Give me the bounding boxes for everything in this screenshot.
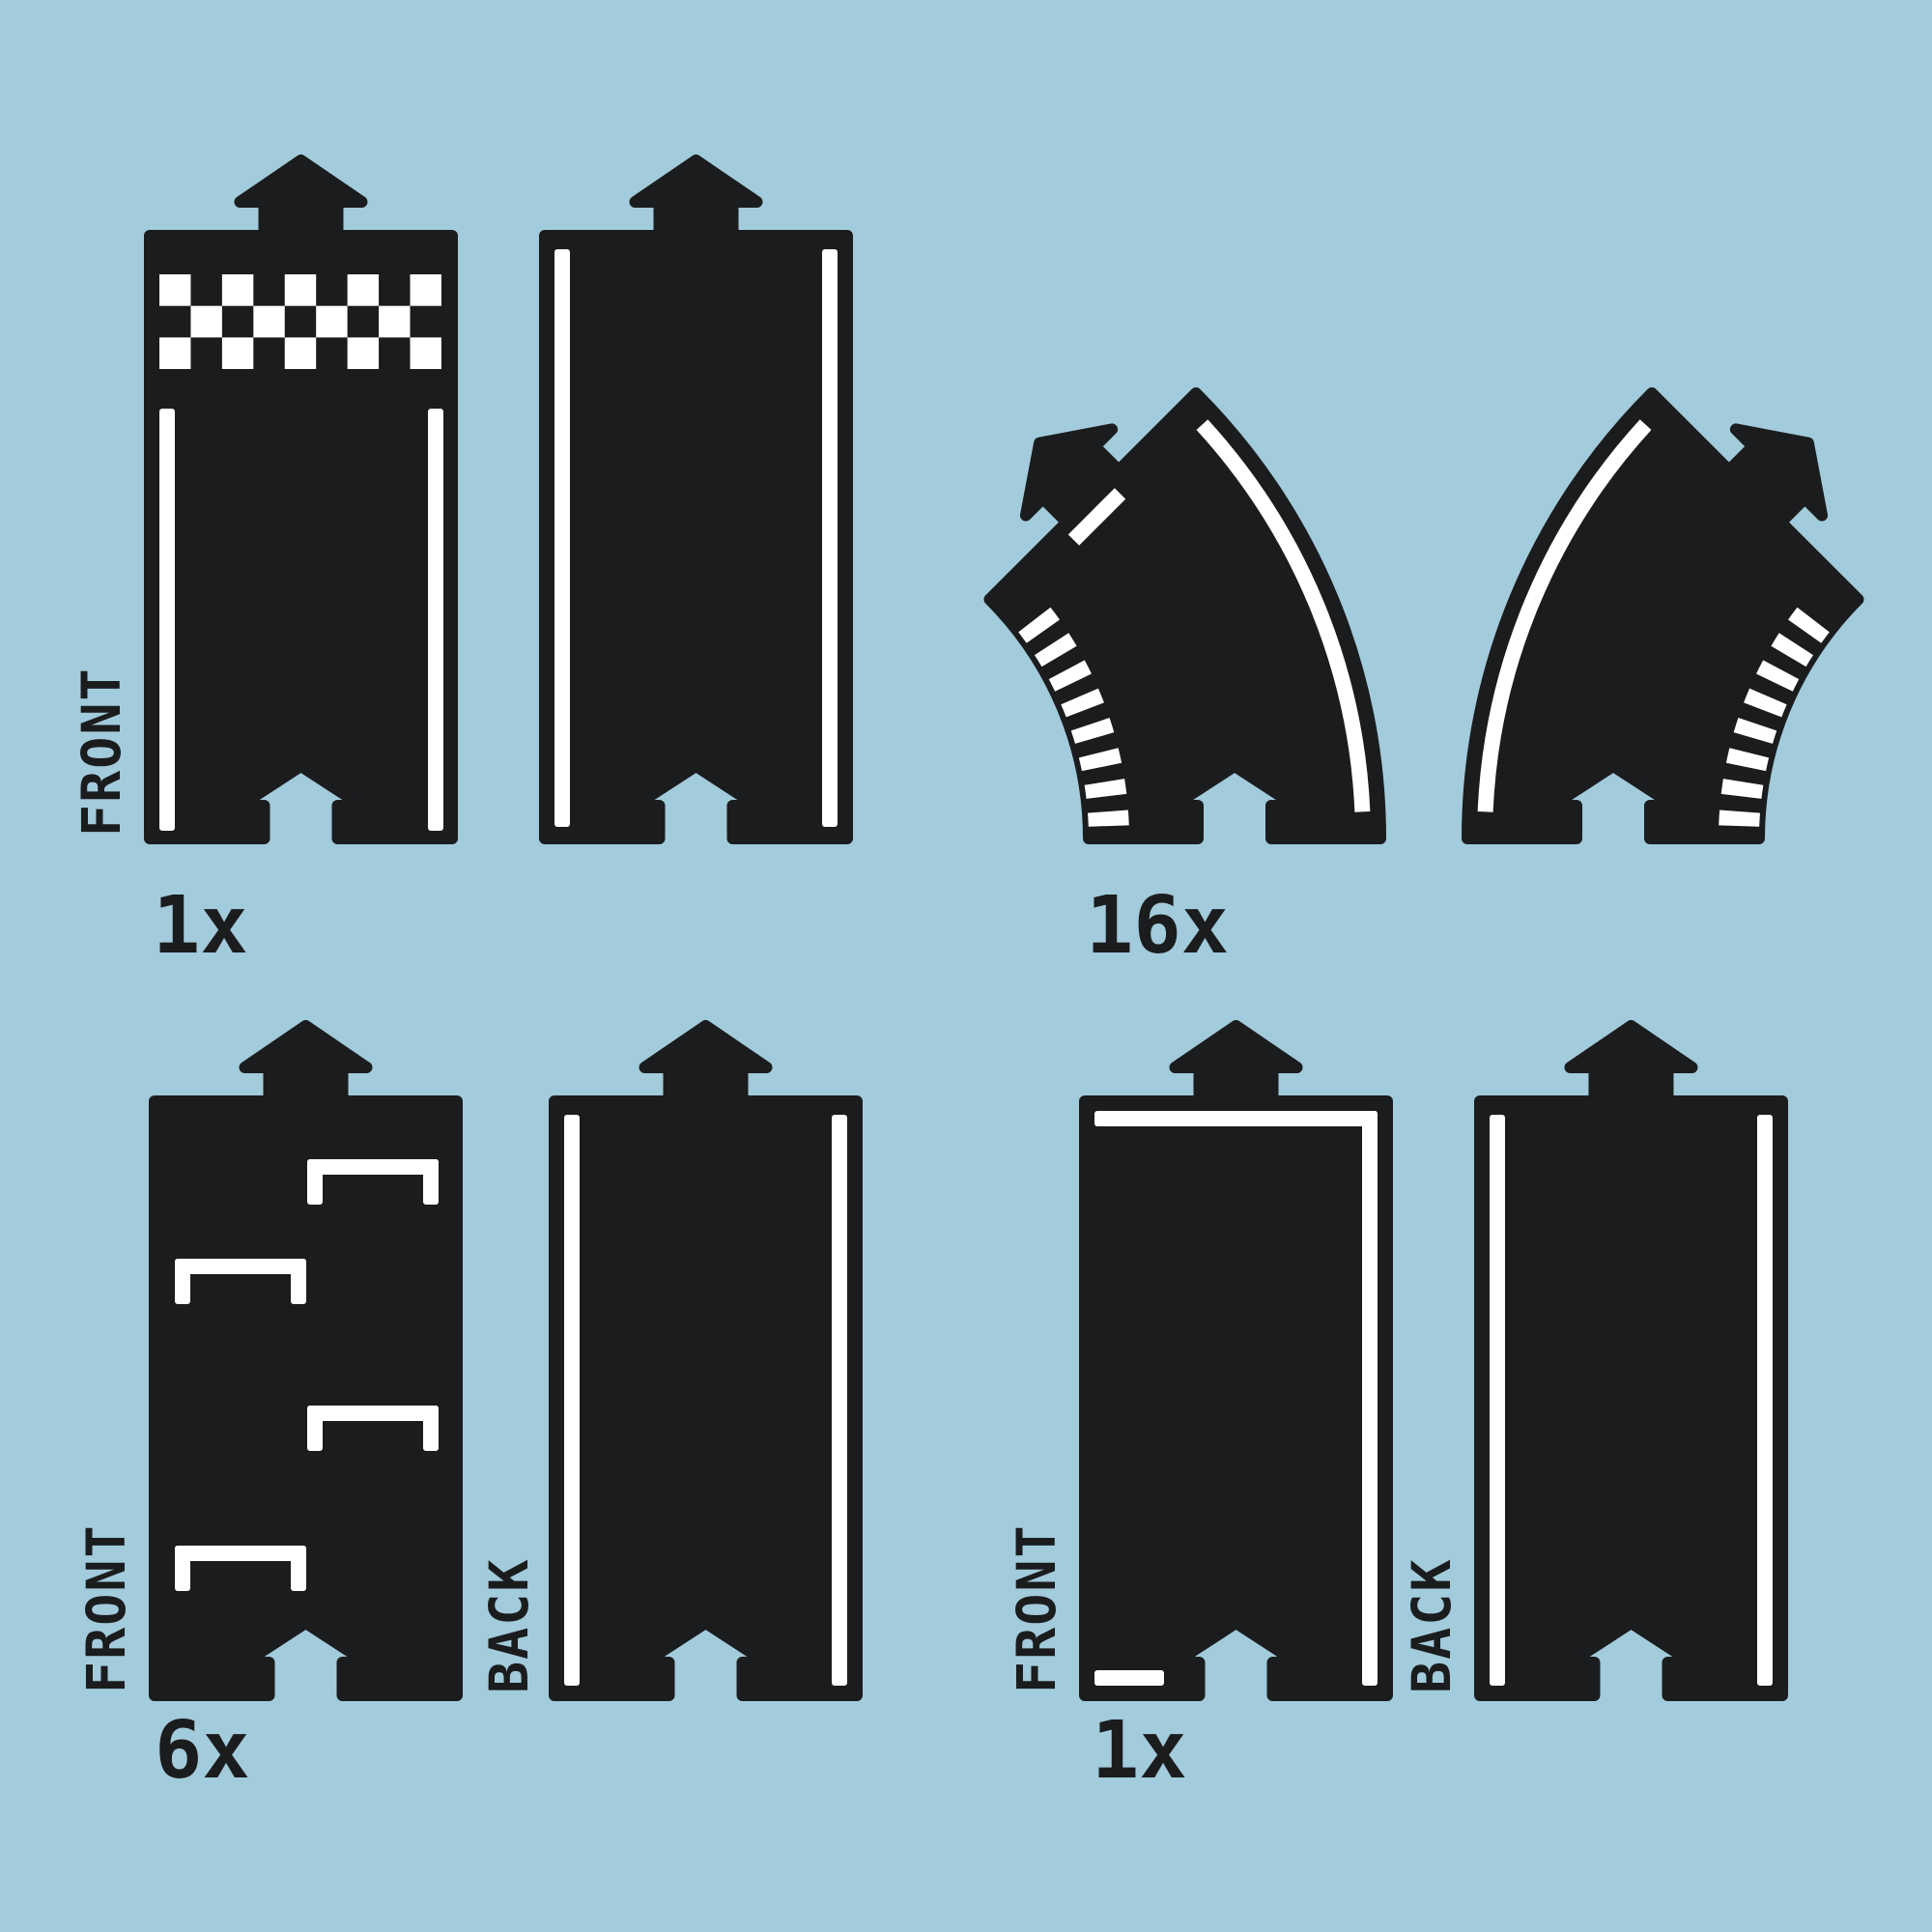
track-pieces-art — [0, 0, 1932, 1932]
finish-back-right-line — [822, 249, 838, 827]
checkered-flag-cell — [222, 337, 253, 369]
parking-front-label: FRONT — [80, 1523, 133, 1693]
border-front-label: FRONT — [1010, 1523, 1064, 1693]
finish-count-label: 1x — [153, 887, 248, 966]
track-parts-diagram: FRONT BACK 1x 16x FRONT BACK 6x FRONT BA… — [0, 0, 1932, 1932]
finish-front-right-line — [428, 409, 443, 831]
parking-bay-4-right-end — [291, 1546, 306, 1591]
parking-bay-2-left-end — [175, 1259, 190, 1304]
finish-back-piece — [545, 160, 847, 838]
finish-front-label: FRONT — [75, 667, 128, 837]
parking-bay-3-bar — [307, 1406, 439, 1421]
parking-bay-3-left-end — [307, 1406, 323, 1451]
checkered-flag-cell — [411, 337, 441, 369]
border-front-right-line — [1362, 1111, 1378, 1686]
parking-bay-4-left-end — [175, 1546, 190, 1591]
parking-back-label: BACK — [483, 1558, 536, 1693]
checkered-flag-cell — [285, 274, 316, 306]
checkered-flag-cell — [222, 274, 253, 306]
parking-front-piece — [155, 1026, 457, 1695]
parking-bay-1-left-end — [307, 1159, 323, 1205]
checkered-flag-cell — [190, 306, 221, 338]
border-count-label: 1x — [1092, 1712, 1187, 1791]
parking-bay-1-bar — [307, 1159, 439, 1175]
checkered-flag-cell — [316, 306, 347, 338]
parking-bay-2-bar — [175, 1259, 306, 1274]
checkered-flag-cell — [253, 306, 284, 338]
parking-bay-4-bar — [175, 1546, 306, 1561]
checkered-flag-cell — [348, 274, 379, 306]
parking-count-label: 6x — [155, 1712, 250, 1791]
checkered-flag-cell — [411, 274, 441, 306]
checkered-flag-cell — [285, 337, 316, 369]
border-back-left-line — [1490, 1115, 1505, 1686]
border-front-bottom-stub-line — [1094, 1670, 1164, 1686]
border-back-label: BACK — [1406, 1558, 1459, 1693]
border-back-right-line — [1757, 1115, 1773, 1686]
parking-back-right-line — [832, 1115, 847, 1686]
border-front-top-line — [1094, 1111, 1378, 1126]
parking-bay-3-right-end — [423, 1406, 439, 1451]
parking-bay-2-right-end — [291, 1259, 306, 1304]
parking-back-piece — [554, 1026, 857, 1695]
border-back-piece — [1480, 1026, 1782, 1695]
finish-back-left-line — [554, 249, 570, 827]
finish-front-left-line — [159, 409, 175, 831]
parking-back-left-line — [564, 1115, 580, 1686]
checkered-flag-cell — [159, 274, 190, 306]
checkered-flag-cell — [379, 306, 410, 338]
curve-count-label: 16x — [1086, 887, 1229, 966]
checkered-flag-cell — [348, 337, 379, 369]
parking-bay-1-right-end — [423, 1159, 439, 1205]
finish-back-label: BACK — [372, 701, 425, 837]
checkered-flag-cell — [159, 337, 190, 369]
